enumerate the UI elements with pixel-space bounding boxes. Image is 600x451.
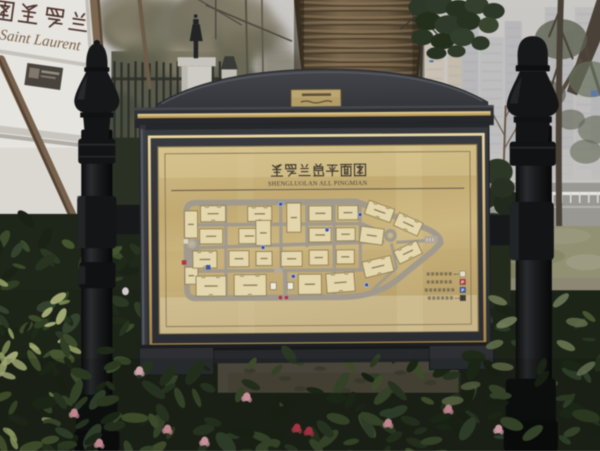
svg-text:P: P xyxy=(461,288,464,293)
svg-text:SHENGLUOLAN ALL PINGMIAN: SHENGLUOLAN ALL PINGMIAN xyxy=(268,180,368,188)
svg-text:P: P xyxy=(461,280,464,285)
